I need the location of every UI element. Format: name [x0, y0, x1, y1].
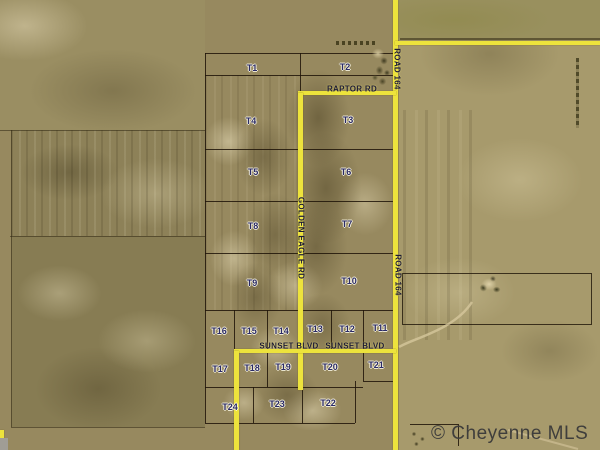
tract-label-t22: T22	[320, 398, 336, 408]
tract-label-t20: T20	[322, 362, 338, 372]
field-boundary	[11, 130, 12, 427]
windbreak-east	[576, 58, 579, 128]
road-label-sunset-blvd-east: SUNSET BLVD	[325, 342, 384, 351]
tract-label-t2: T2	[340, 62, 351, 72]
tract-label-t14: T14	[273, 326, 289, 336]
field-top-left	[0, 0, 205, 130]
road-label-road-164-top: ROAD 164	[393, 48, 402, 90]
tract-label-t13: T13	[307, 324, 323, 334]
parcel-boundary	[363, 381, 394, 382]
parcel-boundary	[234, 310, 235, 351]
tract-label-t3: T3	[343, 115, 354, 125]
tract-label-t12: T12	[339, 324, 355, 334]
tract-label-t1: T1	[247, 63, 258, 73]
field-east-corner	[394, 0, 600, 40]
tract-label-t11: T11	[372, 323, 387, 333]
field-boundary	[10, 236, 205, 237]
tract-label-t8: T8	[248, 221, 259, 231]
west-road-line	[234, 351, 239, 450]
tract-label-t9: T9	[247, 278, 258, 288]
road-label-raptor-rd: RAPTOR RD	[327, 85, 377, 94]
field-boundary	[11, 427, 205, 428]
tract-label-t16: T16	[211, 326, 227, 336]
mls-watermark: © Cheyenne MLS	[431, 423, 588, 445]
tract-label-t23: T23	[269, 399, 285, 409]
tract-label-t15: T15	[241, 326, 257, 336]
parcel-boundary	[253, 387, 254, 423]
road-patch	[0, 438, 8, 450]
tract-label-t10: T10	[341, 276, 357, 286]
field-boundary	[400, 38, 600, 40]
parcel-boundary	[205, 387, 363, 388]
field-striated-left	[11, 130, 205, 236]
windbreak-treeline	[336, 41, 378, 45]
parcel-boundary	[205, 53, 206, 423]
tract-label-t24: T24	[222, 402, 238, 412]
parcel-boundary	[205, 423, 355, 424]
field-boundary	[0, 130, 205, 131]
road-label-sunset-blvd-west: SUNSET BLVD	[259, 342, 318, 351]
tract-label-t21: T21	[368, 360, 384, 370]
road-label-golden-eagle-rd: GOLDEN EAGLE RD	[297, 197, 306, 279]
farmstead-east	[472, 268, 510, 304]
top-east-road-line	[395, 41, 600, 45]
tract-label-t6: T6	[341, 167, 352, 177]
tract-label-t4: T4	[246, 116, 257, 126]
parcel-boundary	[302, 387, 303, 423]
parcel-boundary	[300, 53, 301, 93]
field-bottom-left	[11, 236, 205, 427]
tract-label-t18: T18	[244, 363, 260, 373]
parcel-boundary	[355, 381, 356, 423]
tract-label-t17: T17	[212, 364, 228, 374]
tract-label-t7: T7	[342, 219, 353, 229]
tract-label-t5: T5	[248, 167, 259, 177]
tract-label-t19: T19	[275, 362, 291, 372]
aerial-parcel-map: T1 T2 T3 T4 T5 T6 T7 T8 T9 T10 T11 T12 T…	[0, 0, 600, 450]
road-label-road-164-mid: ROAD 164	[394, 254, 403, 296]
